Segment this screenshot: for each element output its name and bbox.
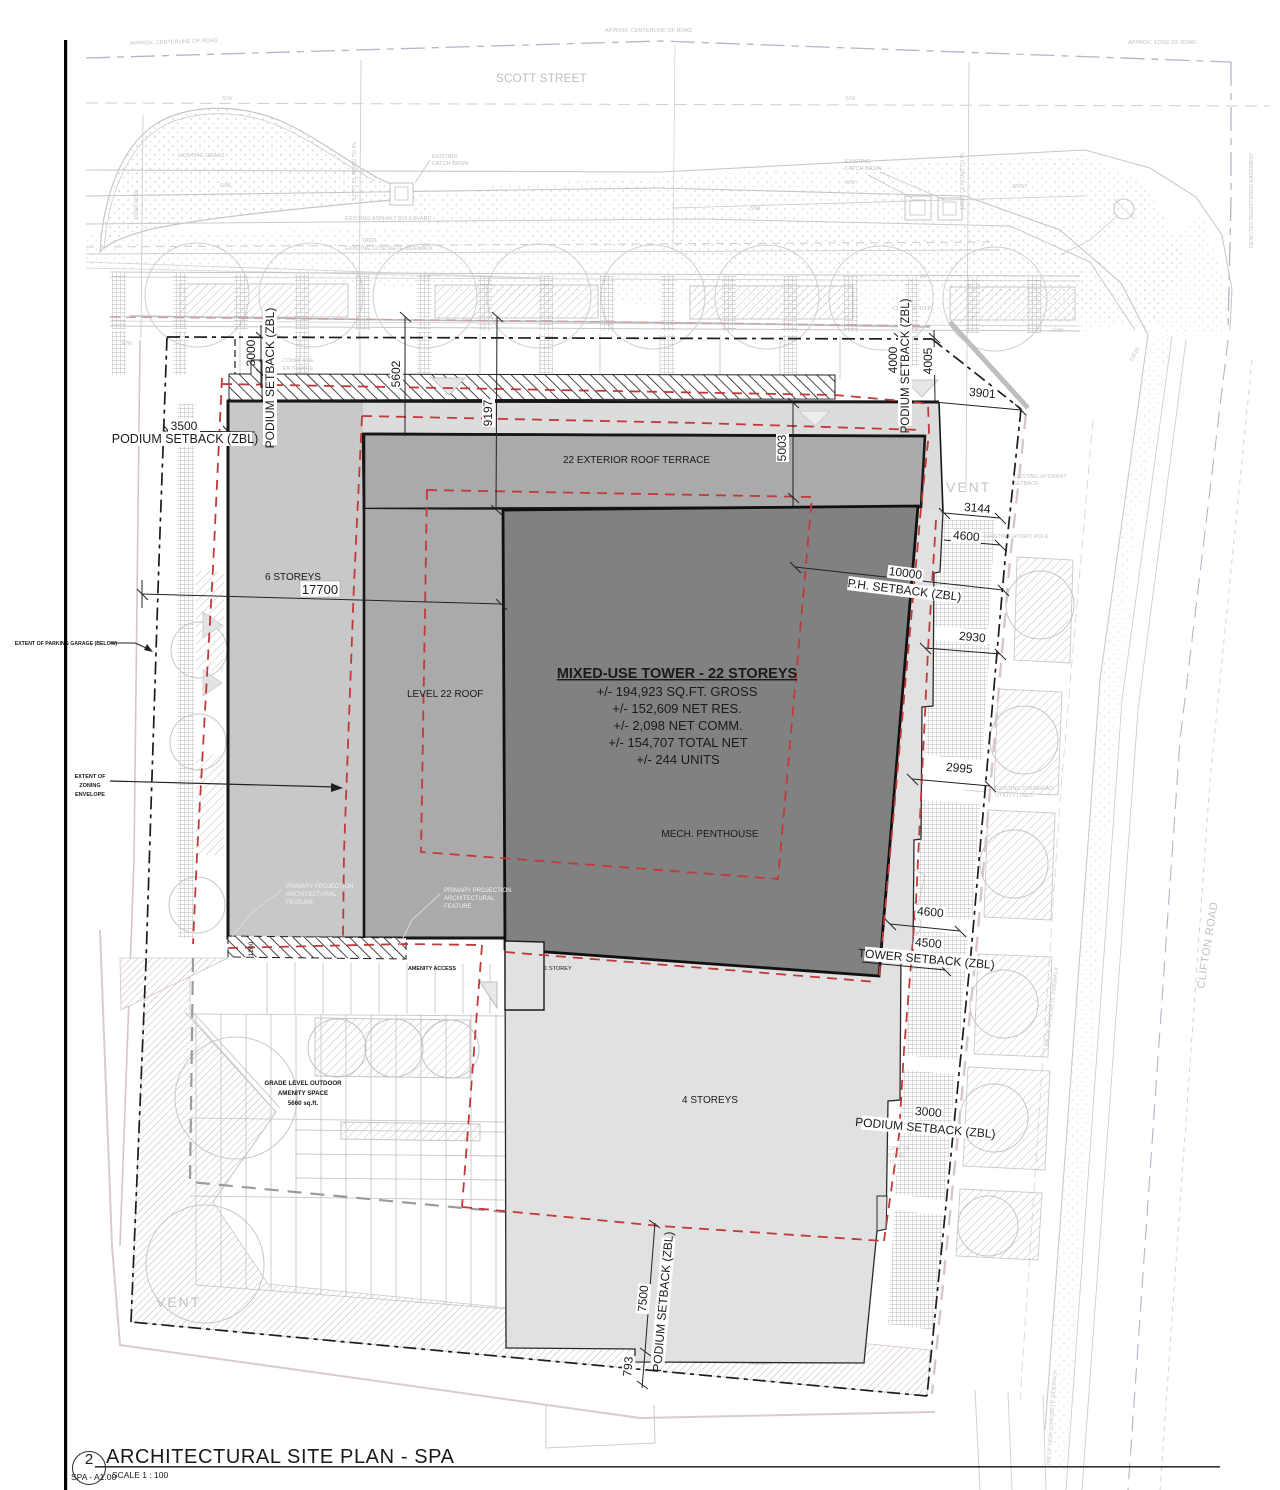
svg-text:5602: 5602 (389, 360, 403, 387)
svg-text:2995: 2995 (945, 760, 973, 776)
svg-text:5660 sq.ft.: 5660 sq.ft. (288, 1100, 319, 1107)
svg-text:ENVELOPE: ENVELOPE (75, 792, 105, 798)
svg-text:PODIUM SETBACK (ZBL): PODIUM SETBACK (ZBL) (112, 432, 259, 446)
svg-text:PODIUM SETBACK (ZBL): PODIUM SETBACK (ZBL) (263, 308, 277, 449)
svg-text:13912 CL ROAD TO PL: 13912 CL ROAD TO PL (960, 152, 966, 210)
svg-text:ARCHITECTURAL: ARCHITECTURAL (286, 892, 337, 898)
svg-text:EXISTING HYDRO POLE: EXISTING HYDRO POLE (985, 534, 1049, 540)
svg-text:PODIUM SETBACK (ZBL): PODIUM SETBACK (ZBL) (900, 298, 912, 433)
svg-text:PRIMARY PROJECTION: PRIMARY PROJECTION (286, 884, 353, 890)
svg-text:AMENITY SPACE: AMENITY SPACE (278, 1090, 328, 1097)
svg-text:GRADE LEVEL OUTDOOR: GRADE LEVEL OUTDOOR (264, 1080, 342, 1087)
svg-text:4500: 4500 (914, 935, 942, 951)
svg-text:FEATURE: FEATURE (444, 904, 472, 910)
svg-text:4000: 4000 (886, 346, 900, 373)
svg-text:17700: 17700 (302, 582, 338, 597)
svg-text:EXTENT OF: EXTENT OF (75, 774, 107, 780)
svg-text:3144: 3144 (963, 500, 991, 516)
svg-text:+/- 2,098 NET COMM.: +/- 2,098 NET COMM. (613, 718, 742, 733)
svg-text:SCALE 1 : 100: SCALE 1 : 100 (112, 1470, 169, 1480)
svg-text:APPROX. EDGE OF ROAD: APPROX. EDGE OF ROAD (1128, 40, 1196, 46)
svg-text:7500: 7500 (635, 1284, 651, 1312)
svg-text:3901: 3901 (968, 385, 996, 401)
svg-text:R/W: R/W (122, 341, 134, 347)
svg-text:4 STOREYS: 4 STOREYS (682, 1095, 738, 1106)
svg-text:EXISTING GRASS: EXISTING GRASS (178, 153, 225, 159)
svg-text:4600: 4600 (952, 528, 980, 544)
svg-text:9197: 9197 (481, 399, 495, 426)
svg-text:CATCH BASIN: CATCH BASIN (845, 166, 882, 172)
svg-text:DENOTES REGISTERED EASEMENT: DENOTES REGISTERED EASEMENT (1249, 152, 1255, 248)
svg-text:10921: 10921 (362, 238, 377, 244)
svg-text:4005: 4005 (921, 347, 935, 374)
svg-text:MIXED-USE TOWER - 22 STOREYS: MIXED-USE TOWER - 22 STOREYS (557, 666, 798, 682)
svg-text:ZONING: ZONING (79, 783, 100, 789)
svg-text:S/W: S/W (845, 96, 856, 102)
svg-text:12775 CL ROAD TO PL: 12775 CL ROAD TO PL (352, 142, 358, 200)
svg-text:APPROX. CENTERLINE OF ROAD: APPROX. CENTERLINE OF ROAD (605, 28, 692, 34)
svg-text:EXISTING HYDRANT: EXISTING HYDRANT (1013, 474, 1067, 480)
svg-text:3000: 3000 (914, 1104, 942, 1120)
svg-text:R/W: R/W (1053, 328, 1065, 334)
svg-text:EXISTING: EXISTING (845, 159, 871, 165)
svg-text:SCOTT STREET: SCOTT STREET (496, 73, 587, 85)
svg-text:S/W: S/W (750, 206, 761, 212)
svg-text:3500: 3500 (171, 419, 198, 433)
svg-text:2930: 2930 (958, 629, 986, 645)
svg-text:4600: 4600 (916, 904, 944, 920)
svg-text:10957: 10957 (1012, 184, 1027, 190)
svg-text:3000: 3000 (244, 339, 258, 366)
svg-text:+/- 244 UNITS: +/- 244 UNITS (636, 752, 720, 767)
svg-text:EXISTING CONCRETE SIDEWALK: EXISTING CONCRETE SIDEWALK (345, 246, 433, 252)
svg-text:EXISTING: EXISTING (432, 154, 458, 160)
svg-text:ENTRANCE: ENTRANCE (283, 366, 314, 372)
svg-text:15000 ROW: 15000 ROW (134, 189, 140, 220)
svg-text:MECH. PENTHOUSE: MECH. PENTHOUSE (661, 829, 759, 840)
svg-text:LEVEL 22 ROOF: LEVEL 22 ROOF (407, 689, 483, 700)
svg-text:+/- 152,609 NET RES.: +/- 152,609 NET RES. (612, 701, 741, 716)
svg-text:PRIMARY PROJECTION: PRIMARY PROJECTION (444, 888, 511, 894)
svg-text:AMENITY ACCESS: AMENITY ACCESS (408, 966, 456, 972)
svg-text:1 STOREY: 1 STOREY (544, 966, 572, 972)
svg-text:R/W: R/W (220, 183, 232, 189)
svg-text:SPA - A1.00: SPA - A1.00 (71, 1472, 116, 1482)
svg-text:+/- 194,923 SQ.FT. GROSS: +/- 194,923 SQ.FT. GROSS (597, 684, 758, 699)
svg-text:SETBACK: SETBACK (1013, 481, 1039, 487)
svg-text:FEATURE: FEATURE (286, 900, 314, 906)
svg-text:EX: EX (920, 274, 928, 280)
svg-text:1200: 1200 (248, 941, 255, 956)
svg-text:VENT: VENT (946, 479, 991, 495)
svg-text:ARCHITECTURAL: ARCHITECTURAL (444, 896, 495, 902)
svg-text:COMM. USE: COMM. USE (282, 358, 314, 364)
svg-text:R/W: R/W (845, 180, 857, 186)
svg-text:793: 793 (620, 1356, 636, 1377)
svg-text:22 EXTERIOR ROOF TERRACE: 22 EXTERIOR ROOF TERRACE (563, 455, 710, 466)
svg-text:2: 2 (85, 1451, 93, 1468)
svg-text:+/- 154,707 TOTAL NET: +/- 154,707 TOTAL NET (608, 735, 747, 750)
svg-text:ARCHITECTURAL SITE PLAN - SPA: ARCHITECTURAL SITE PLAN - SPA (106, 1446, 455, 1468)
svg-text:S/W: S/W (222, 96, 233, 102)
svg-text:VENT: VENT (156, 1294, 201, 1310)
svg-text:CATCH BASIN: CATCH BASIN (432, 161, 469, 167)
svg-text:EXISTING ASPHALT BOULEVARD: EXISTING ASPHALT BOULEVARD (345, 216, 432, 222)
svg-text:5003: 5003 (775, 434, 789, 461)
